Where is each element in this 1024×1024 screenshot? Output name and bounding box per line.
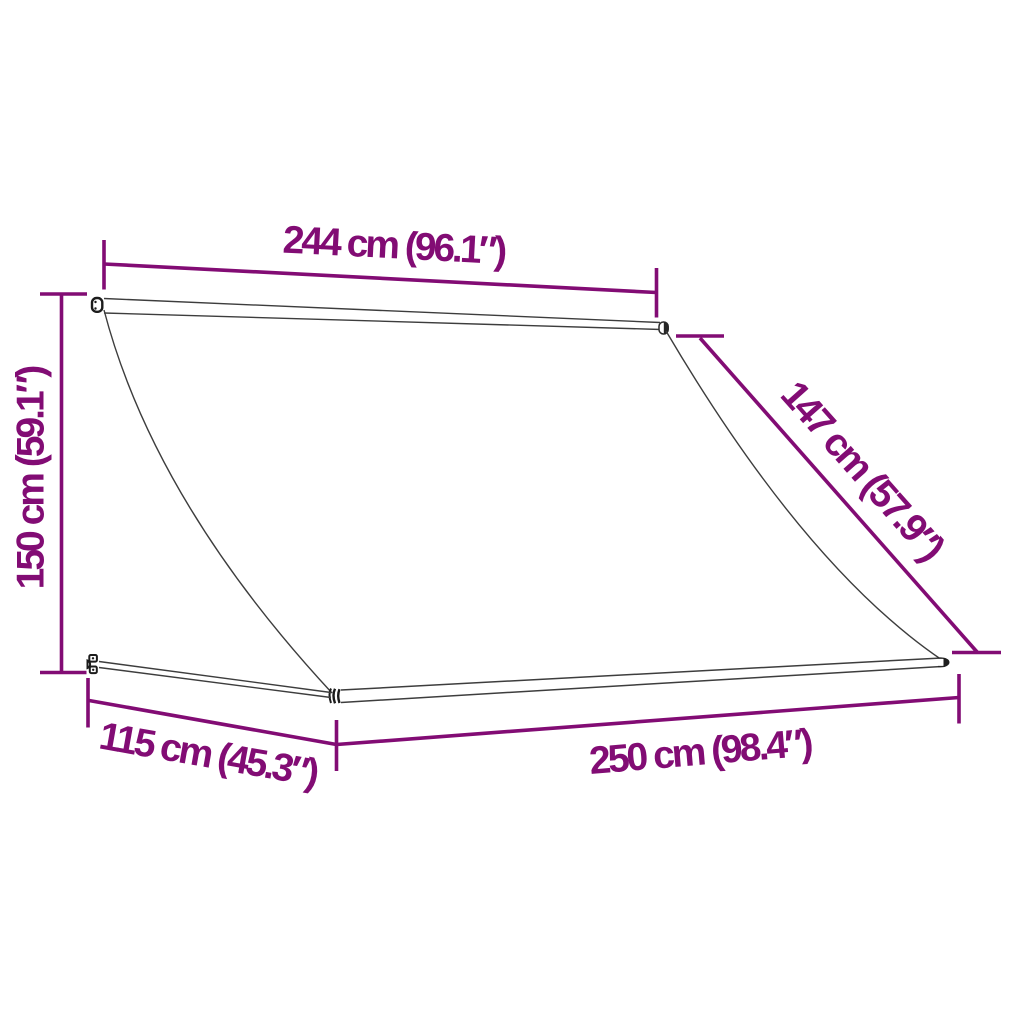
svg-text:250 cm (98.4″): 250 cm (98.4″) <box>588 721 814 783</box>
svg-text:244 cm (96.1″): 244 cm (96.1″) <box>282 219 508 274</box>
svg-text:150 cm (59.1″): 150 cm (59.1″) <box>9 366 52 590</box>
svg-text:147 cm (57.9″): 147 cm (57.9″) <box>772 373 952 569</box>
svg-text:115 cm (45.3″): 115 cm (45.3″) <box>96 715 322 796</box>
